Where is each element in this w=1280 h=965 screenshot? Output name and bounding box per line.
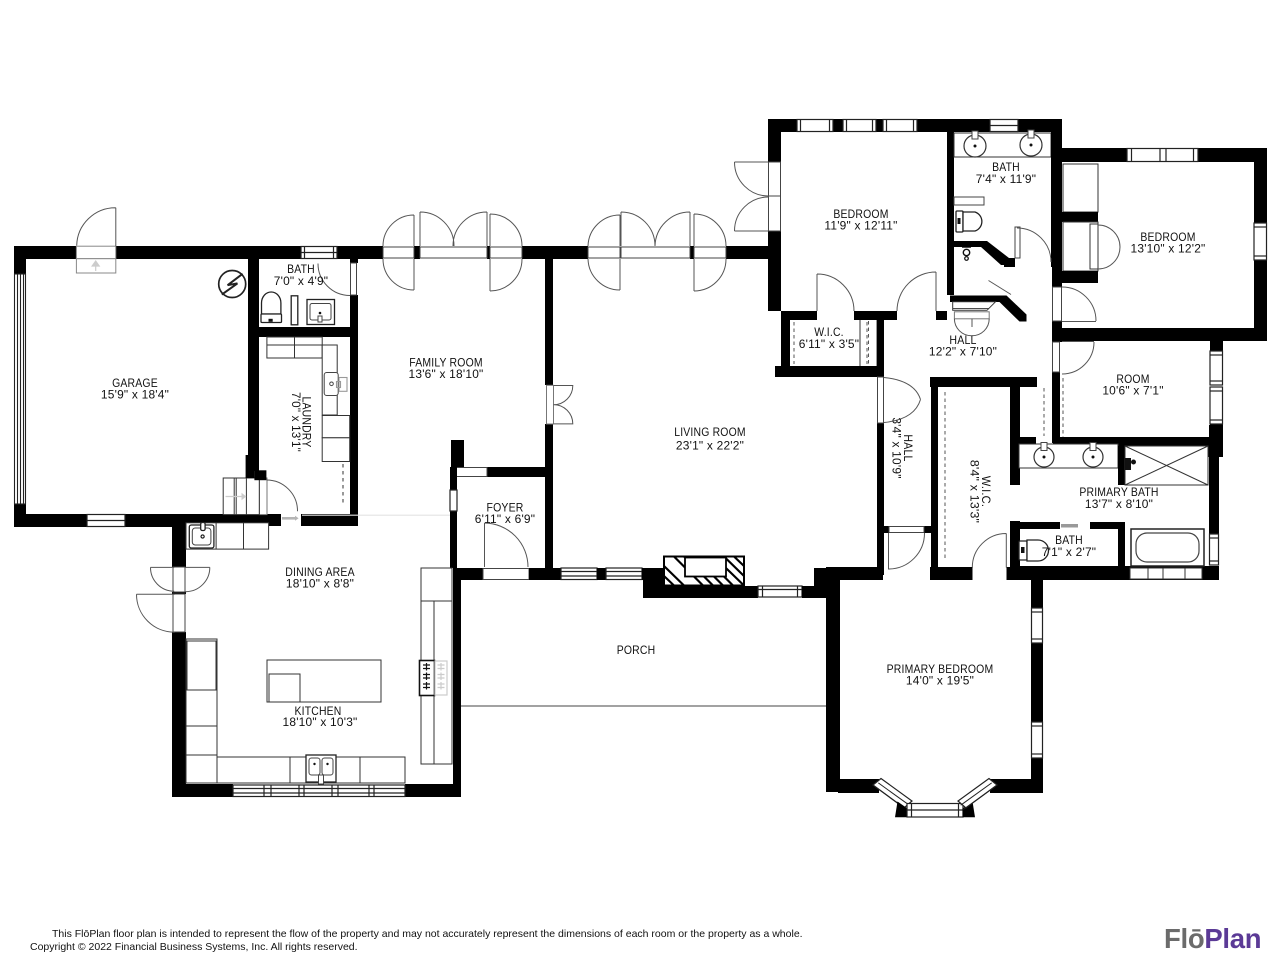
svg-text:7'0" x 13'1": 7'0" x 13'1" [289, 392, 302, 452]
svg-text:LIVING ROOM: LIVING ROOM [674, 426, 746, 439]
svg-text:6'11" x 3'5": 6'11" x 3'5" [799, 338, 860, 351]
svg-text:FlōPlan: FlōPlan [1164, 923, 1261, 954]
svg-text:18'10" x 8'8": 18'10" x 8'8" [286, 578, 354, 591]
svg-text:PORCH: PORCH [617, 644, 656, 657]
svg-text:13'7" x 8'10": 13'7" x 8'10" [1085, 498, 1153, 511]
svg-text:6'11" x 6'9": 6'11" x 6'9" [475, 513, 536, 526]
svg-text:15'9" x 18'4": 15'9" x 18'4" [101, 389, 169, 402]
svg-text:18'10" x 10'3": 18'10" x 10'3" [283, 716, 358, 729]
svg-text:7'4" x 11'9": 7'4" x 11'9" [976, 173, 1037, 186]
svg-text:14'0" x 19'5": 14'0" x 19'5" [906, 675, 974, 688]
svg-text:13'10" x 12'2": 13'10" x 12'2" [1131, 243, 1206, 256]
svg-text:12'2" x 7'10": 12'2" x 7'10" [929, 346, 997, 359]
svg-text:This FlōPlan floor plan is int: This FlōPlan floor plan is intended to r… [52, 928, 803, 940]
svg-text:8'4" x 13'3": 8'4" x 13'3" [968, 460, 981, 523]
svg-text:23'1" x 22'2": 23'1" x 22'2" [676, 440, 744, 453]
svg-text:10'6" x 7'1": 10'6" x 7'1" [1102, 385, 1163, 398]
svg-text:7'1" x 2'7": 7'1" x 2'7" [1042, 546, 1097, 559]
svg-text:3'4" x 10'9": 3'4" x 10'9" [890, 417, 903, 478]
svg-text:11'9" x 12'11": 11'9" x 12'11" [824, 220, 897, 233]
svg-text:13'6" x 18'10": 13'6" x 18'10" [409, 368, 484, 381]
svg-text:7'0" x 4'9": 7'0" x 4'9" [274, 275, 329, 288]
svg-text:Copyright © 2022 Financial Bus: Copyright © 2022 Financial Business Syst… [30, 941, 358, 953]
